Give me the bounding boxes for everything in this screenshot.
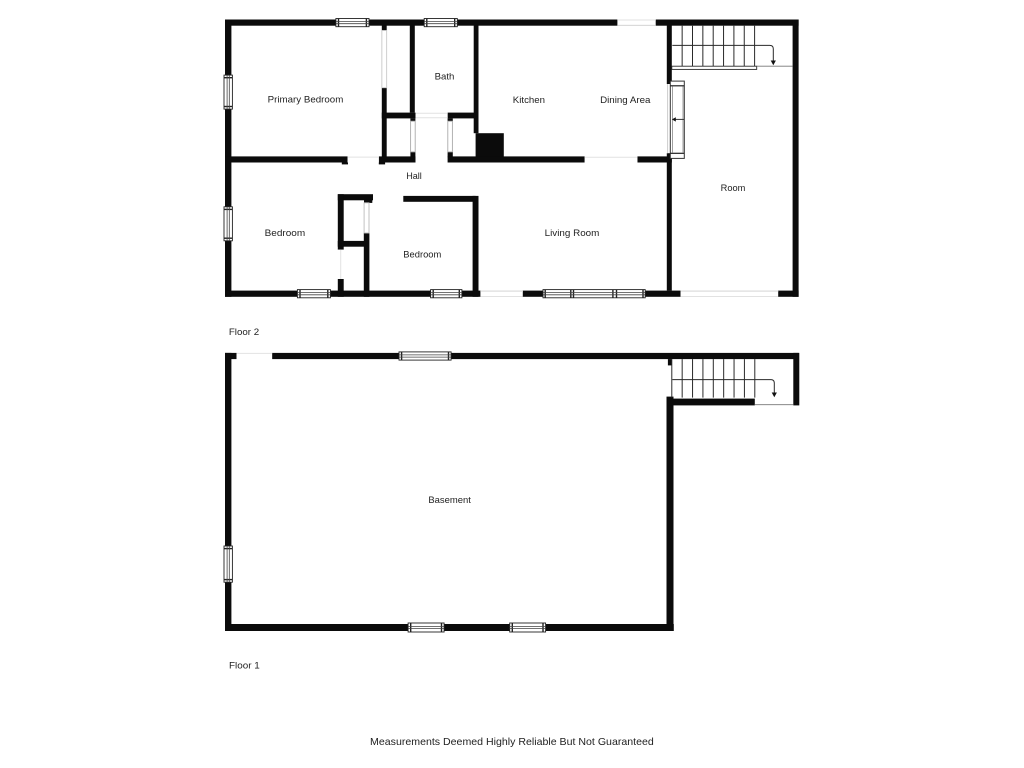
svg-text:Measurements Deemed Highly Rel: Measurements Deemed Highly Reliable But …	[370, 737, 654, 748]
svg-text:Primary Bedroom: Primary Bedroom	[268, 95, 344, 106]
svg-text:Kitchen: Kitchen	[513, 95, 545, 106]
svg-text:Basement: Basement	[428, 495, 471, 506]
svg-text:Bedroom: Bedroom	[403, 249, 441, 260]
svg-text:Bedroom: Bedroom	[265, 228, 306, 239]
svg-text:Floor 2: Floor 2	[229, 327, 259, 338]
svg-text:Dining Area: Dining Area	[600, 95, 651, 106]
svg-text:Bath: Bath	[435, 71, 455, 82]
svg-text:Floor 1: Floor 1	[229, 660, 260, 671]
svg-text:Hall: Hall	[406, 171, 422, 182]
svg-text:Room: Room	[721, 183, 746, 194]
svg-text:Living Room: Living Room	[545, 228, 600, 239]
